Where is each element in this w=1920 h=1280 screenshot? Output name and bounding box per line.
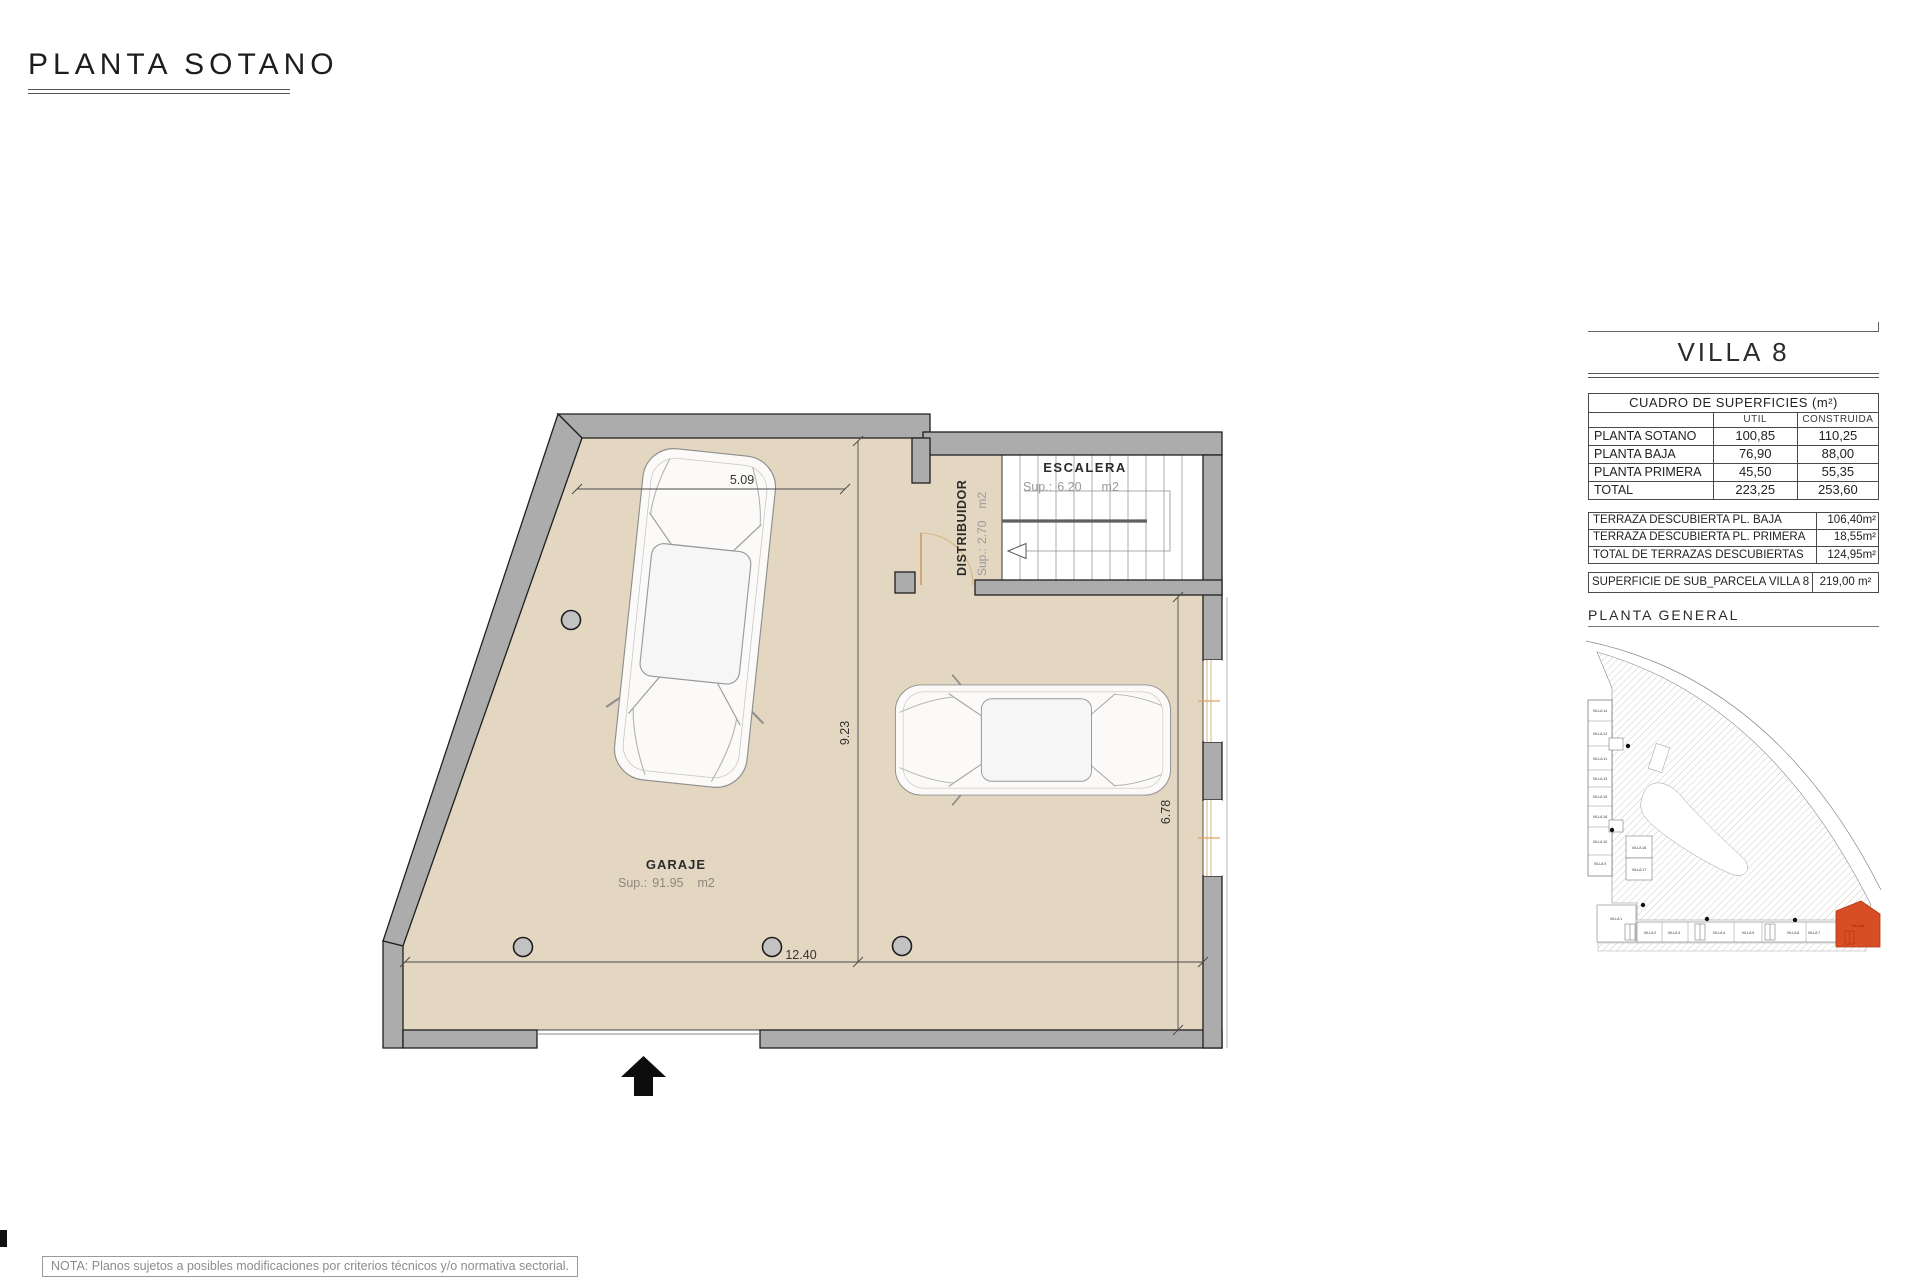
surfaces-table-title: CUADRO DE SUPERFICIES (m²)	[1589, 393, 1879, 413]
svg-text:VILLA 13: VILLA 13	[1593, 777, 1608, 781]
wall-left	[383, 941, 403, 1048]
svg-text:VILLA 7: VILLA 7	[1808, 931, 1821, 935]
table-row: TOTAL DE TERRAZAS DESCUBIERTAS 124,95m²	[1589, 547, 1879, 564]
table-row: PLANTA BAJA 76,90 88,00	[1589, 445, 1879, 463]
column	[893, 937, 912, 956]
wall-stair-top	[923, 432, 1222, 455]
wall-right-mid	[1203, 742, 1222, 800]
terraces-table: TERRAZA DESCUBIERTA PL. BAJA 106,40m² TE…	[1588, 512, 1879, 565]
svg-text:VILLA 10: VILLA 10	[1593, 840, 1608, 844]
table-row: SUPERFICIE DE SUB_PARCELA VILLA 8 219,00…	[1589, 573, 1879, 592]
room-escalera-name: ESCALERA	[1043, 460, 1127, 475]
room-distribuidor-name: DISTRIBUIDOR	[955, 480, 969, 576]
svg-text:VILLA 8: VILLA 8	[1852, 924, 1865, 928]
wall-bottom-right	[760, 1030, 1222, 1048]
wall-right-lower	[1203, 876, 1222, 1048]
svg-text:VILLA 5: VILLA 5	[1742, 931, 1755, 935]
svg-text:VILLA 16: VILLA 16	[1593, 815, 1608, 819]
basement-plan: 5.09 9.23 6.78 12.40 GARAJE Sup.:91.95m2…	[383, 414, 1227, 1096]
svg-text:VILLA 18: VILLA 18	[1632, 846, 1647, 850]
svg-text:VILLA 1: VILLA 1	[1610, 917, 1623, 921]
wall-stair-right	[1203, 455, 1222, 660]
surfaces-col-empty	[1589, 413, 1714, 428]
wall-bottom-left	[403, 1030, 537, 1048]
dim-right-vertical: 6.78	[1159, 800, 1173, 824]
room-escalera-area: Sup.:6.20m2	[1023, 480, 1119, 494]
drawing-sheet: 5.09 9.23 6.78 12.40 GARAJE Sup.:91.95m2…	[0, 0, 1920, 1280]
villa-info-panel: VILLA 8 CUADRO DE SUPERFICIES (m²) UTIL …	[1588, 331, 1879, 627]
svg-text:VILLA 6: VILLA 6	[1787, 931, 1800, 935]
note: NOTA: Planos sujetos a posibles modifica…	[42, 1256, 578, 1277]
dim-bottom: 12.40	[785, 948, 816, 962]
villa-title-underline	[1588, 373, 1879, 378]
svg-text:VILLA 15: VILLA 15	[1593, 795, 1608, 799]
svg-text:VILLA 2: VILLA 2	[1644, 931, 1657, 935]
subparcel-table: SUPERFICIE DE SUB_PARCELA VILLA 8 219,00…	[1588, 572, 1879, 592]
frame-tick	[1878, 322, 1879, 332]
column	[763, 938, 782, 957]
car-top-view-2	[895, 675, 1170, 806]
planta-general-title: PLANTA GENERAL	[1588, 607, 1879, 627]
table-row: TERRAZA DESCUBIERTA PL. BAJA 106,40m²	[1589, 512, 1879, 529]
wall-stair-bottom	[975, 580, 1222, 595]
svg-text:VILLA 17: VILLA 17	[1632, 868, 1647, 872]
wall-door-stub	[895, 572, 915, 593]
svg-text:VILLA 4: VILLA 4	[1713, 931, 1726, 935]
column	[562, 611, 581, 630]
wall-top	[558, 414, 930, 438]
svg-text:VILLA 12: VILLA 12	[1593, 732, 1608, 736]
table-row-total: TOTAL 223,25 253,60	[1589, 481, 1879, 499]
garage-entrance	[537, 1034, 760, 1096]
page-title: PLANTA SOTANO	[28, 48, 339, 82]
table-row: PLANTA SOTANO 100,85 110,25	[1589, 427, 1879, 445]
surfaces-col-util: UTIL	[1713, 413, 1797, 428]
site-hatch-bottom-band	[1598, 943, 1866, 951]
svg-text:VILLA 14: VILLA 14	[1593, 709, 1608, 713]
logo-fragment	[0, 1230, 7, 1247]
floor-plan-canvas: 5.09 9.23 6.78 12.40 GARAJE Sup.:91.95m2…	[0, 0, 1920, 1280]
entrance-arrow-shaft	[634, 1077, 653, 1096]
column	[514, 938, 533, 957]
title-underline	[28, 89, 290, 94]
surfaces-col-construida: CONSTRUIDA	[1797, 413, 1878, 428]
room-garaje-name: GARAJE	[646, 857, 706, 872]
svg-text:VILLA 11: VILLA 11	[1593, 757, 1607, 761]
room-distribuidor-area: Sup.:2.70m2	[975, 492, 989, 576]
dim-middle-vertical: 9.23	[838, 721, 852, 745]
sheet-title-block: PLANTA SOTANO	[28, 48, 339, 94]
svg-text:VILLA 9: VILLA 9	[1594, 862, 1607, 866]
surfaces-table: CUADRO DE SUPERFICIES (m²) UTIL CONSTRUI…	[1588, 393, 1879, 500]
site-plan: VILLA 14 VILLA 12 VILLA 11 VILLA 13 VILL…	[1586, 641, 1881, 951]
entrance-arrow-icon	[621, 1056, 666, 1077]
frame-line	[1588, 331, 1879, 332]
dim-top: 5.09	[730, 473, 754, 487]
room-garaje-area: Sup.:91.95m2	[618, 876, 715, 890]
svg-text:VILLA 3: VILLA 3	[1668, 931, 1681, 935]
table-row: PLANTA PRIMERA 45,50 55,35	[1589, 463, 1879, 481]
villa-title: VILLA 8	[1588, 337, 1879, 368]
wall-distribuidor-stub	[912, 438, 930, 483]
site-inner-villas: VILLA 18 VILLA 17	[1626, 836, 1652, 880]
table-row: TERRAZA DESCUBIERTA PL. PRIMERA 18,55m²	[1589, 529, 1879, 546]
